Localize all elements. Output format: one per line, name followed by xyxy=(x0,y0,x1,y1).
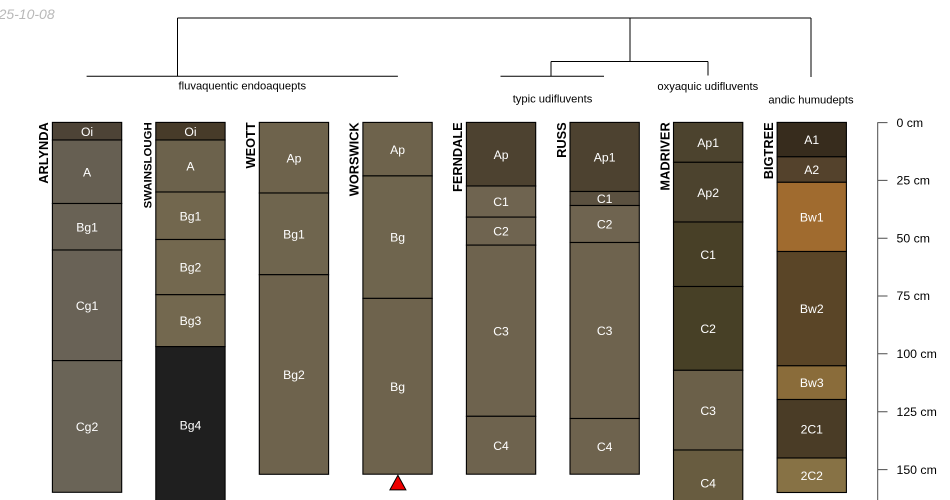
svg-text:C4: C4 xyxy=(493,439,509,453)
svg-text:25 cm: 25 cm xyxy=(897,174,931,188)
svg-text:C1: C1 xyxy=(700,248,716,262)
svg-text:2025-10-08: 2025-10-08 xyxy=(0,6,55,22)
svg-text:Bg2: Bg2 xyxy=(283,368,305,382)
svg-text:0 cm: 0 cm xyxy=(897,116,924,130)
svg-text:ARLYNDA: ARLYNDA xyxy=(36,122,51,183)
svg-text:fluvaquentic endoaquepts: fluvaquentic endoaquepts xyxy=(179,80,307,92)
svg-text:C3: C3 xyxy=(700,404,716,418)
svg-text:C4: C4 xyxy=(700,477,716,491)
svg-text:C2: C2 xyxy=(700,322,716,336)
svg-text:100 cm: 100 cm xyxy=(897,347,937,361)
svg-text:Oi: Oi xyxy=(81,125,93,139)
svg-text:Bw1: Bw1 xyxy=(800,211,824,225)
svg-text:Bg: Bg xyxy=(390,380,405,394)
svg-text:WEOTT: WEOTT xyxy=(243,122,258,168)
svg-text:75 cm: 75 cm xyxy=(897,289,931,303)
svg-text:andic humudepts: andic humudepts xyxy=(768,94,854,106)
svg-text:C1: C1 xyxy=(597,192,613,206)
svg-text:Ap1: Ap1 xyxy=(594,151,616,165)
svg-text:BIGTREE: BIGTREE xyxy=(761,122,776,179)
svg-text:oxyaquic udifluvents: oxyaquic udifluvents xyxy=(657,81,758,93)
svg-text:150 cm: 150 cm xyxy=(897,463,937,477)
svg-text:typic udifluvents: typic udifluvents xyxy=(513,94,593,106)
svg-text:C2: C2 xyxy=(597,218,613,232)
svg-text:MADRIVER: MADRIVER xyxy=(657,122,672,190)
svg-text:C1: C1 xyxy=(493,195,509,209)
svg-text:Bw3: Bw3 xyxy=(800,376,824,390)
svg-text:Bg2: Bg2 xyxy=(180,261,202,275)
svg-text:WORSWICK: WORSWICK xyxy=(347,122,362,197)
svg-text:Bg3: Bg3 xyxy=(180,314,202,328)
svg-text:2C1: 2C1 xyxy=(801,422,824,436)
svg-text:125 cm: 125 cm xyxy=(897,405,937,419)
svg-text:C4: C4 xyxy=(597,440,613,454)
svg-text:A: A xyxy=(186,160,195,174)
svg-text:50 cm: 50 cm xyxy=(897,231,931,245)
svg-text:A2: A2 xyxy=(804,163,819,177)
svg-text:A1: A1 xyxy=(804,133,819,147)
svg-text:Bg1: Bg1 xyxy=(180,209,202,223)
svg-text:Bg1: Bg1 xyxy=(283,227,305,241)
svg-text:Ap1: Ap1 xyxy=(697,136,719,150)
svg-text:C2: C2 xyxy=(493,225,509,239)
svg-text:2C2: 2C2 xyxy=(801,469,824,483)
svg-text:C3: C3 xyxy=(493,324,509,338)
svg-text:Cg2: Cg2 xyxy=(76,420,99,434)
svg-text:Ap2: Ap2 xyxy=(697,186,719,200)
svg-text:Ap: Ap xyxy=(494,148,509,162)
svg-text:C3: C3 xyxy=(597,324,613,338)
svg-text:Oi: Oi xyxy=(184,125,196,139)
svg-text:Ap: Ap xyxy=(390,143,405,157)
svg-text:Bw2: Bw2 xyxy=(800,302,824,316)
svg-text:Cg1: Cg1 xyxy=(76,299,99,313)
svg-text:Bg1: Bg1 xyxy=(76,220,98,234)
svg-text:RUSS: RUSS xyxy=(554,122,569,158)
svg-text:Ap: Ap xyxy=(286,151,301,165)
svg-text:Bg4: Bg4 xyxy=(180,419,202,433)
svg-text:A: A xyxy=(83,165,92,179)
svg-text:FERNDALE: FERNDALE xyxy=(450,122,465,192)
svg-text:Bg: Bg xyxy=(390,231,405,245)
svg-text:SWAINSLOUGH: SWAINSLOUGH xyxy=(143,122,155,208)
